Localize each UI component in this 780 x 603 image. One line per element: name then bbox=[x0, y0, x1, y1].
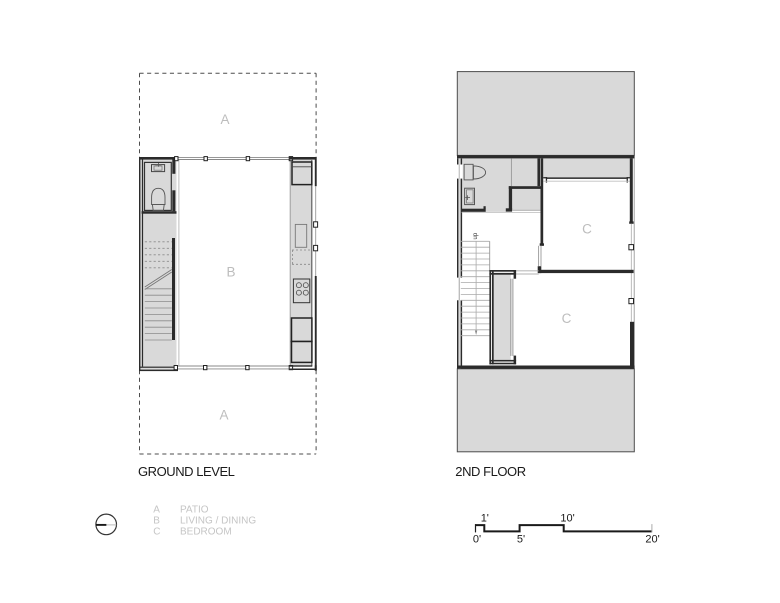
svg-text:C: C bbox=[153, 527, 160, 538]
svg-text:LIVING / DINING: LIVING / DINING bbox=[180, 516, 256, 527]
svg-text:2ND FLOOR: 2ND FLOOR bbox=[455, 464, 525, 479]
svg-text:A: A bbox=[219, 408, 228, 423]
svg-text:PATIO: PATIO bbox=[180, 505, 209, 516]
svg-text:GROUND LEVEL: GROUND LEVEL bbox=[138, 464, 235, 479]
svg-text:5': 5' bbox=[517, 534, 525, 546]
svg-text:BEDROOM: BEDROOM bbox=[180, 527, 232, 538]
svg-text:A: A bbox=[220, 112, 229, 127]
svg-text:up: up bbox=[473, 232, 479, 239]
svg-text:C: C bbox=[562, 311, 572, 326]
svg-text:B: B bbox=[153, 516, 160, 527]
svg-text:1': 1' bbox=[481, 513, 489, 525]
svg-text:10': 10' bbox=[560, 513, 574, 525]
svg-text:A: A bbox=[153, 505, 160, 516]
svg-text:20': 20' bbox=[645, 534, 659, 546]
svg-text:C: C bbox=[582, 222, 592, 237]
svg-text:0': 0' bbox=[473, 534, 481, 546]
svg-text:B: B bbox=[226, 265, 235, 280]
